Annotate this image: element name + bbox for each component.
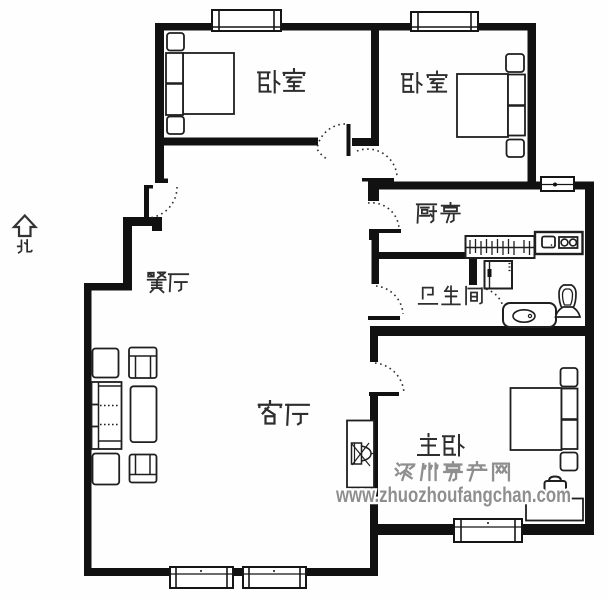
svg-text:www.zhuozhoufangchan.com: www.zhuozhoufangchan.com [335, 483, 571, 507]
